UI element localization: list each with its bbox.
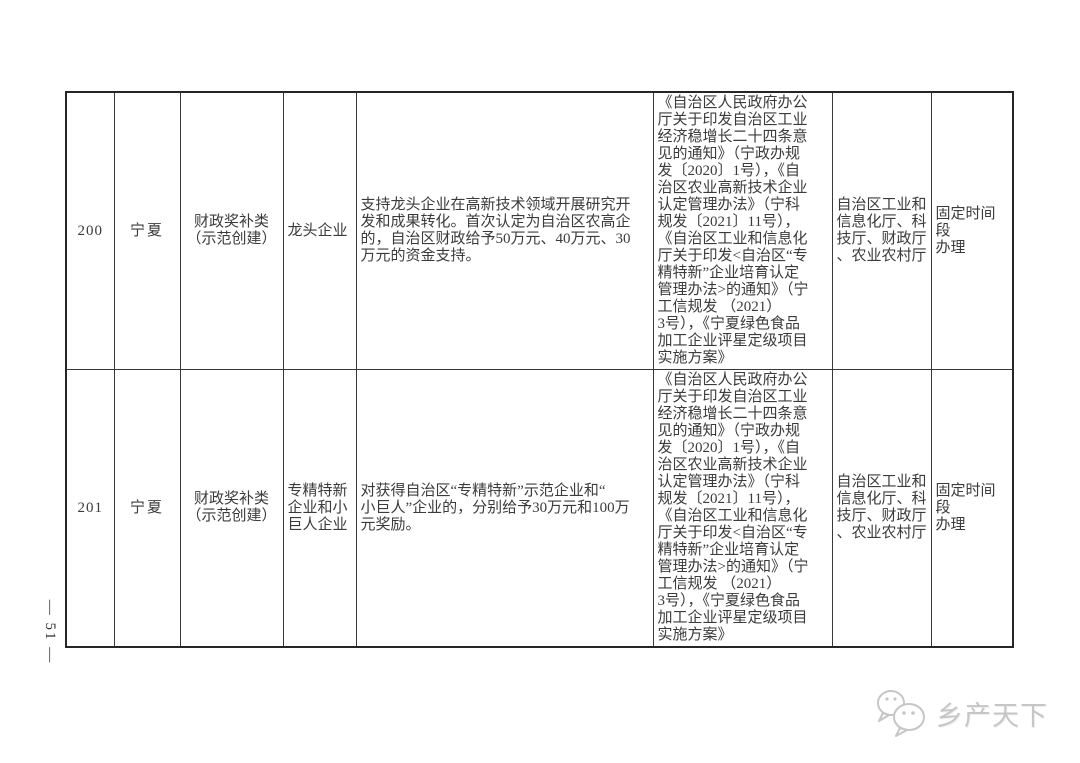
cell-category: 财政奖补类 （示范创建） xyxy=(180,370,283,648)
cell-row-number: 200 xyxy=(66,92,114,370)
cell-region: 宁夏 xyxy=(114,92,180,370)
brand-text: 乡产天下 xyxy=(936,694,1048,733)
cell-enterprise-type: 专精特新 企业和小 巨人企业 xyxy=(283,370,356,648)
cell-policy-basis: 《自治区人民政府办公 厅关于印发自治区工业 经济稳增长二十四条意 见的通知》（宁… xyxy=(653,92,832,370)
cell-support-content: 对获得自治区“专精特新”示范企业和“ 小巨人”企业的，分别给予30万元和100万… xyxy=(356,370,653,648)
cell-departments: 自治区工业和 信息化厅、科 技厅、财政厅 、农业农村厅 xyxy=(832,370,931,648)
cell-enterprise-type: 龙头企业 xyxy=(283,92,356,370)
cell-row-number: 201 xyxy=(66,370,114,648)
cell-region: 宁夏 xyxy=(114,370,180,648)
cell-policy-basis: 《自治区人民政府办公 厅关于印发自治区工业 经济稳增长二十四条意 见的通知》（宁… xyxy=(653,370,832,648)
cell-departments: 自治区工业和 信息化厅、科 技厅、财政厅 、农业农村厅 xyxy=(832,92,931,370)
policy-table: 200 宁夏 财政奖补类 （示范创建） 龙头企业 支持龙头企业在高新技术领域开展… xyxy=(65,91,1014,648)
cell-support-content: 支持龙头企业在高新技术领域开展研究开 发和成果转化。首次认定为自治区农高企 的，… xyxy=(356,92,653,370)
table-row: 200 宁夏 财政奖补类 （示范创建） 龙头企业 支持龙头企业在高新技术领域开展… xyxy=(66,92,1013,370)
chat-bubbles-icon xyxy=(872,687,930,739)
document-page: — 51 — 200 宁夏 财政奖补类 （示范创建） 龙头企业 支持龙头企业在高… xyxy=(0,0,1080,763)
brand-watermark: 乡产天下 xyxy=(872,687,1048,739)
cell-category: 财政奖补类 （示范创建） xyxy=(180,92,283,370)
cell-handling: 固定时间段 办理 xyxy=(931,92,1013,370)
table-row: 201 宁夏 财政奖补类 （示范创建） 专精特新 企业和小 巨人企业 对获得自治… xyxy=(66,370,1013,648)
cell-handling: 固定时间段 办理 xyxy=(931,370,1013,648)
page-number: — 51 — xyxy=(38,592,58,672)
